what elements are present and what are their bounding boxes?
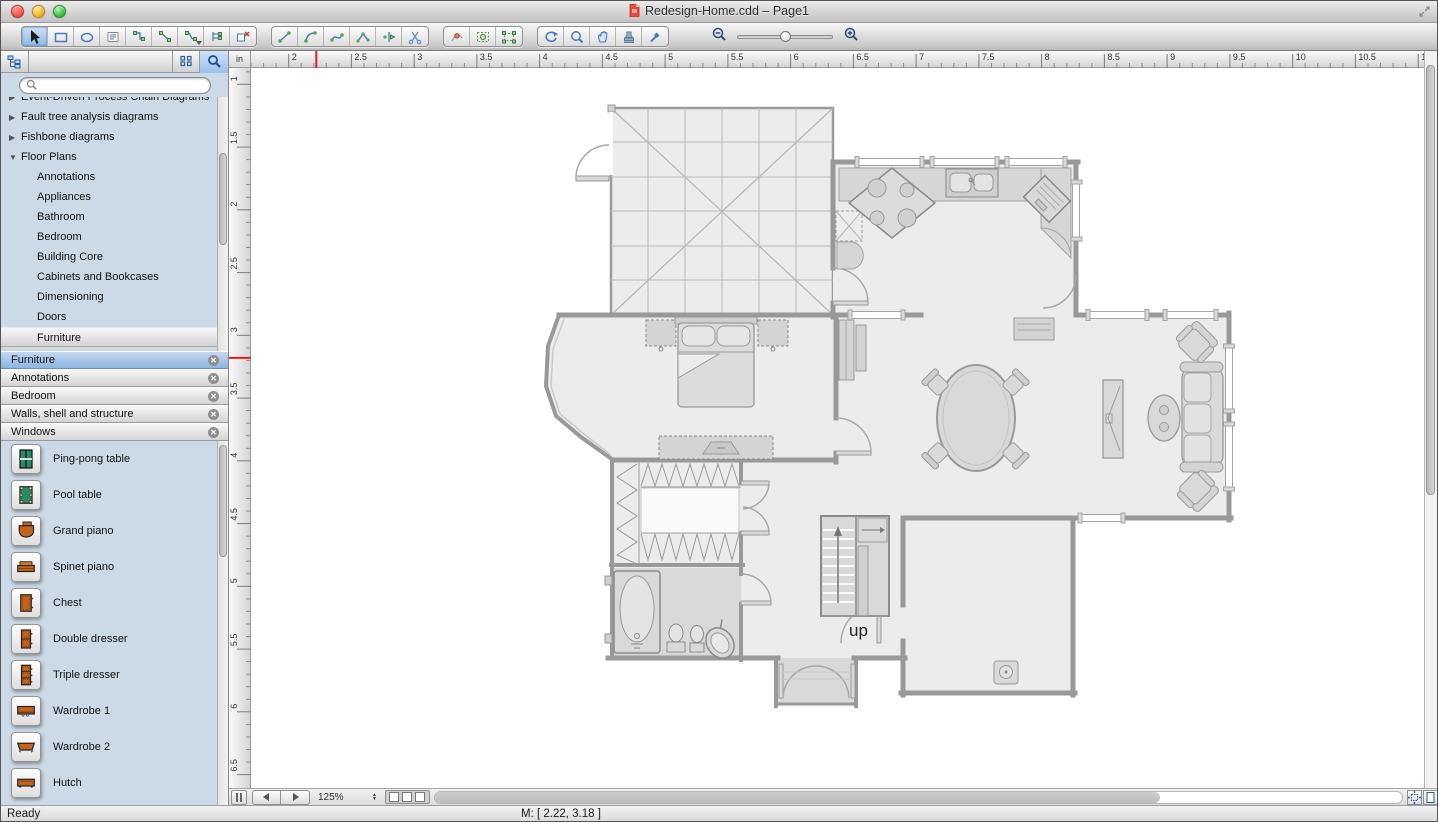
shape-item[interactable]: Spinet piano	[1, 549, 228, 585]
search-row	[1, 73, 228, 97]
open-libraries: Furniture✕Annotations✕Bedroom✕Walls, she…	[1, 351, 228, 441]
reshape-tool[interactable]	[444, 27, 470, 46]
vertical-scrollbar[interactable]	[1424, 51, 1437, 788]
svg-text:6: 6	[794, 52, 799, 62]
bathtub[interactable]	[605, 571, 660, 653]
tv-cabinet[interactable]	[1103, 380, 1123, 458]
great-room[interactable]	[836, 315, 1229, 693]
svg-text:2.5: 2.5	[354, 52, 367, 62]
pick-tool[interactable]	[642, 27, 668, 46]
page-thumbnail[interactable]	[402, 792, 412, 802]
view-tools	[537, 26, 669, 47]
search-icon	[26, 79, 38, 91]
svg-text:10.5: 10.5	[1358, 52, 1376, 62]
ruler-unit-box[interactable]: in	[229, 51, 251, 68]
svg-text:4: 4	[229, 453, 239, 458]
svg-text:1: 1	[229, 76, 239, 81]
resize-window-icon[interactable]	[1418, 5, 1431, 23]
statusbar: Ready M: [ 2.22, 3.18 ]	[1, 805, 1437, 822]
tree-item[interactable]: Bedroom	[1, 227, 228, 247]
floor-plan[interactable]: up	[251, 68, 1426, 788]
hall-shelves[interactable]	[839, 320, 866, 380]
svg-text:3.5: 3.5	[480, 52, 493, 62]
tree-item[interactable]: ▶Fault tree analysis diagrams	[1, 107, 228, 127]
tree-connector-tool[interactable]	[204, 27, 230, 46]
shape-list: Ping-pong tablePool tableGrand pianoSpin…	[1, 441, 228, 805]
stairs-up-label: up	[849, 621, 868, 640]
shape-item[interactable]: Grand piano	[1, 513, 228, 549]
canvas-region: in 22.533.544.555.566.577.588.599.51010.…	[229, 51, 1437, 805]
scissors-tool[interactable]	[402, 27, 428, 46]
drawing-canvas[interactable]: up	[251, 68, 1426, 788]
shape-item[interactable]: Ping-pong table	[1, 441, 228, 477]
actual-size-button[interactable]	[1423, 790, 1438, 805]
svg-text:6: 6	[229, 704, 239, 709]
window-title: Redesign-Home.cdd – Page1	[1, 4, 1437, 20]
vertical-ruler[interactable]: 11.522.533.544.555.566.5	[229, 68, 251, 788]
tree-item[interactable]: ▼Floor Plans	[1, 147, 228, 167]
grand-piano-icon[interactable]	[11, 516, 41, 546]
hutch-icon[interactable]	[11, 768, 41, 798]
close-library-button[interactable]: ✕	[208, 355, 219, 366]
group-move-tool[interactable]	[496, 27, 522, 46]
svg-text:2.5: 2.5	[229, 257, 239, 270]
smart-connector-tool[interactable]	[126, 27, 152, 46]
svg-text:6.5: 6.5	[856, 52, 869, 62]
zoom-out-icon[interactable]	[711, 26, 727, 47]
svg-text:8: 8	[1045, 52, 1050, 62]
shape-item[interactable]: Chest	[1, 585, 228, 621]
library-header[interactable]: Furniture✕	[1, 351, 228, 369]
zoom-slider-thumb[interactable]	[780, 31, 791, 42]
disconnect-tool[interactable]	[230, 27, 256, 46]
disclosure-closed-icon[interactable]: ▶	[9, 108, 21, 128]
nightstand-right	[758, 320, 788, 346]
wardrobe1-icon[interactable]	[11, 696, 41, 726]
mouse-coordinates: M: [ 2.22, 3.18 ]	[521, 808, 601, 820]
page-thumbnail[interactable]	[389, 792, 399, 802]
side-cabinet[interactable]	[1014, 318, 1054, 340]
svg-text:5.5: 5.5	[731, 52, 744, 62]
svg-text:8.5: 8.5	[1107, 52, 1120, 62]
wardrobe2-icon[interactable]	[11, 732, 41, 762]
svg-text:3.5: 3.5	[229, 383, 239, 396]
staircase[interactable]	[821, 516, 889, 616]
rotate-tool[interactable]	[538, 27, 564, 46]
tree-item[interactable]: ▶Event-Driven Process Chain Diagrams	[1, 97, 228, 107]
bedroom-dresser[interactable]	[659, 436, 773, 459]
tree-item[interactable]: Building Core	[1, 247, 228, 267]
zoom-level[interactable]: 125%	[310, 792, 362, 803]
svg-text:4: 4	[543, 52, 548, 62]
tree-item[interactable]: Dimensioning	[1, 287, 228, 307]
zoom-tool[interactable]	[564, 27, 590, 46]
tree-scrollbar[interactable]	[217, 97, 228, 351]
bottom-scroll-row: 125% ▲▼	[229, 788, 1438, 805]
tree-item[interactable]: Furniture	[1, 327, 228, 347]
search-view-button[interactable]	[200, 51, 228, 73]
ellipse-tool[interactable]	[74, 27, 100, 46]
horizontal-scrollbar[interactable]	[434, 791, 1403, 804]
svg-text:4.5: 4.5	[605, 52, 618, 62]
grid-view-button[interactable]	[173, 51, 200, 73]
shape-tools	[21, 26, 257, 47]
line-tool[interactable]	[272, 27, 298, 46]
tree-item[interactable]: Cabinets and Bookcases	[1, 267, 228, 287]
svg-text:6.5: 6.5	[229, 759, 239, 772]
shape-item[interactable]: Wardrobe 2	[1, 729, 228, 765]
rectangle-tool[interactable]	[48, 27, 74, 46]
zoom-in-icon[interactable]	[843, 26, 859, 47]
deck-door-leaf	[576, 176, 609, 181]
shape-item[interactable]: Wardrobe 1	[1, 693, 228, 729]
pane-splitter-button[interactable]	[231, 790, 247, 805]
search-field[interactable]	[19, 77, 211, 94]
svg-text:3: 3	[417, 52, 422, 62]
library-header[interactable]: Bedroom✕	[1, 387, 228, 405]
page-thumbnails[interactable]	[385, 790, 430, 804]
select-tool[interactable]	[22, 27, 48, 46]
spinet-piano-icon[interactable]	[11, 552, 41, 582]
svg-text:2: 2	[229, 202, 239, 207]
next-page-button[interactable]	[281, 790, 310, 805]
library-sidebar: ▶Event-Driven Process Chain Diagrams▶Fau…	[1, 51, 229, 805]
horizontal-scrollbar-thumb[interactable]	[435, 792, 1160, 803]
zoom-slider-control	[711, 26, 859, 47]
library-header[interactable]: Annotations✕	[1, 369, 228, 387]
svg-text:10: 10	[1296, 52, 1306, 62]
shapes-scrollbar[interactable]	[217, 441, 228, 805]
tree-view-button[interactable]	[1, 51, 29, 73]
tree-item[interactable]: Appliances	[1, 187, 228, 207]
svg-text:3: 3	[229, 327, 239, 332]
close-library-button[interactable]: ✕	[208, 409, 219, 420]
draw-tools	[271, 26, 429, 47]
horizontal-ruler[interactable]: 22.533.544.555.566.577.588.599.51010.511	[251, 51, 1438, 68]
zoom-stepper[interactable]: ▲▼	[372, 793, 377, 801]
svg-text:1.5: 1.5	[229, 132, 239, 145]
arc-tool[interactable]	[298, 27, 324, 46]
close-library-button[interactable]: ✕	[208, 373, 219, 384]
triple-dresser-icon[interactable]	[11, 660, 41, 690]
svg-text:9.5: 9.5	[1233, 52, 1246, 62]
ping-pong-table-icon[interactable]	[11, 444, 41, 474]
coffee-table[interactable]	[1148, 395, 1180, 441]
library-header[interactable]: Walls, shell and structure✕	[1, 405, 228, 423]
svg-text:7: 7	[919, 52, 924, 62]
svg-text:5: 5	[229, 578, 239, 583]
curve-connector-tool[interactable]	[178, 27, 204, 46]
shape-item[interactable]: Pool table	[1, 477, 228, 513]
kitchen-sink[interactable]	[946, 169, 998, 197]
sofa[interactable]	[1180, 362, 1223, 472]
status-text: Ready	[7, 808, 40, 820]
svg-text:5.5: 5.5	[229, 634, 239, 647]
pan-tool[interactable]	[590, 27, 616, 46]
fit-page-button[interactable]	[1407, 790, 1422, 805]
disclosure-closed-icon[interactable]: ▶	[9, 128, 21, 148]
tree-item[interactable]: ▶Fishbone diagrams	[1, 127, 228, 147]
shape-item[interactable]: Hutch	[1, 765, 228, 801]
pool-table-icon[interactable]	[11, 480, 41, 510]
direct-connector-tool[interactable]	[152, 27, 178, 46]
previous-page-button[interactable]	[252, 790, 281, 805]
app-window: Redesign-Home.cdd – Page1 ▶Event-Driven …	[0, 0, 1438, 822]
svg-text:4.5: 4.5	[229, 508, 239, 521]
nightstand-left	[646, 320, 676, 346]
close-library-button[interactable]: ✕	[208, 427, 219, 438]
main-toolbar	[1, 23, 1437, 51]
document-icon	[629, 4, 640, 20]
deck-corner-post	[608, 105, 615, 112]
floor-outlet[interactable]	[994, 661, 1018, 684]
library-header[interactable]: Windows✕	[1, 423, 228, 441]
tree-item[interactable]: Annotations	[1, 167, 228, 187]
deck-grid	[611, 108, 833, 315]
bezier-tool[interactable]	[324, 27, 350, 46]
shape-item[interactable]: Triple dresser	[1, 657, 228, 693]
titlebar[interactable]: Redesign-Home.cdd – Page1	[1, 1, 1437, 23]
group-select-tool[interactable]	[470, 27, 496, 46]
svg-text:9: 9	[1170, 52, 1175, 62]
sidebar-toolbar	[1, 51, 228, 73]
svg-text:5: 5	[668, 52, 673, 62]
text-tool[interactable]	[100, 27, 126, 46]
shape-item[interactable]: Double dresser	[1, 621, 228, 657]
double-dresser-icon[interactable]	[11, 624, 41, 654]
svg-text:7.5: 7.5	[982, 52, 995, 62]
search-input[interactable]	[38, 79, 210, 92]
tree-item[interactable]: Doors	[1, 307, 228, 327]
disclosure-open-icon[interactable]: ▼	[9, 148, 21, 168]
page-thumbnail[interactable]	[415, 792, 425, 802]
deck-door-opening	[609, 112, 613, 175]
library-tree: ▶Event-Driven Process Chain Diagrams▶Fau…	[1, 97, 228, 351]
sidebar-toolbar-spacer	[29, 51, 173, 73]
close-library-button[interactable]: ✕	[208, 391, 219, 402]
transform-tools	[443, 26, 523, 47]
stamp-tool[interactable]	[616, 27, 642, 46]
tree-item[interactable]: Bathroom	[1, 207, 228, 227]
split-tool[interactable]	[376, 27, 402, 46]
polyline-tool[interactable]	[350, 27, 376, 46]
zoom-slider[interactable]	[737, 35, 833, 39]
svg-text:2: 2	[292, 52, 297, 62]
chest-icon[interactable]	[11, 588, 41, 618]
